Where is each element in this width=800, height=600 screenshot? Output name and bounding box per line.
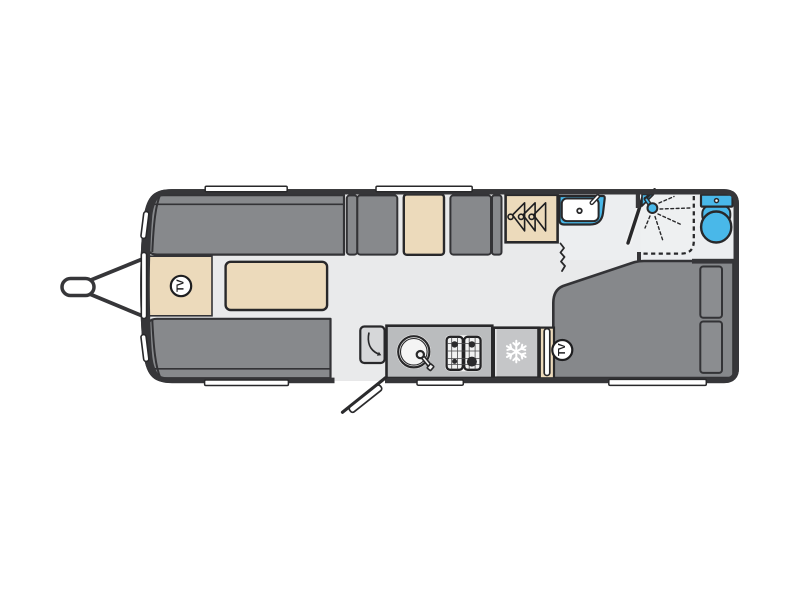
svg-text:TV: TV xyxy=(557,343,568,356)
svg-text:TV: TV xyxy=(176,279,187,292)
